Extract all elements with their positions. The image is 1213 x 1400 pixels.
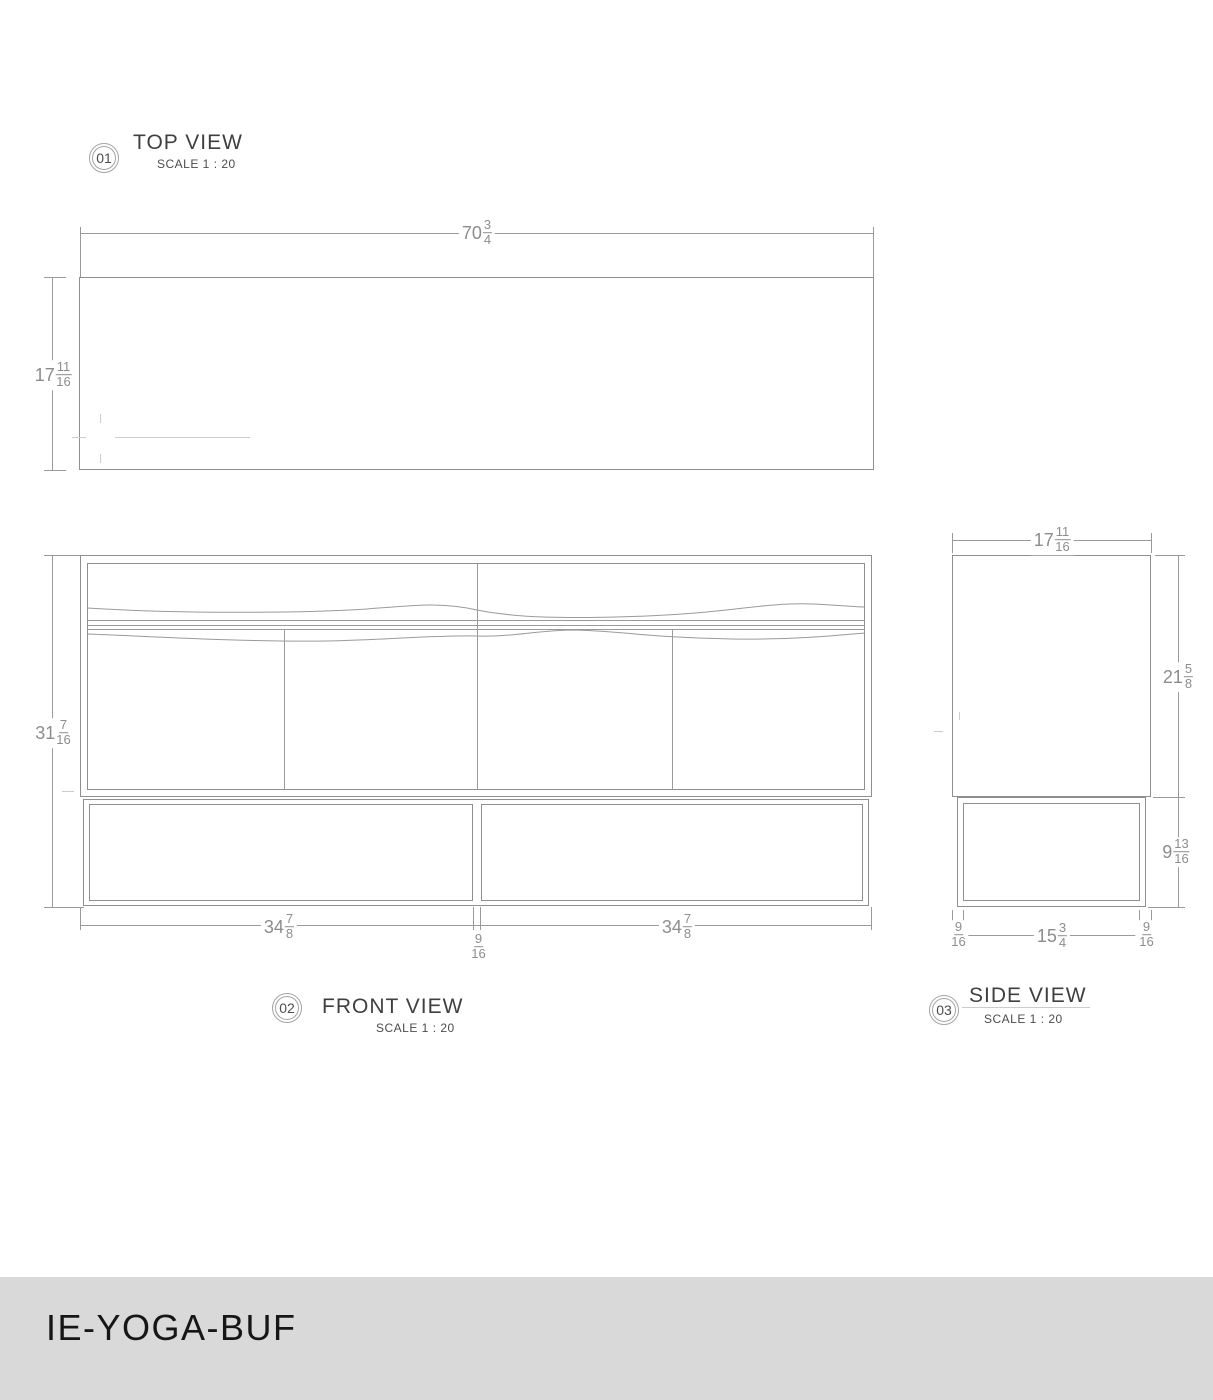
top-view-hidden-tick (100, 454, 101, 463)
side-view-height-ext-bottom (1148, 907, 1185, 908)
side-view-lower-height-dimension: 9 1316 (1159, 837, 1192, 867)
side-view-width-ext-left (952, 533, 953, 553)
top-view-hidden-tick (72, 437, 86, 438)
side-view-upper-height-dimension: 21 58 (1160, 662, 1196, 692)
front-view-left-width-dimension: 34 78 (261, 912, 297, 942)
top-view-width-dimension: 70 34 (459, 218, 495, 248)
side-view-height-ext-mid (1153, 797, 1185, 798)
front-view-base-shelf-left (89, 804, 473, 901)
front-view-base-shelf-right (481, 804, 863, 901)
top-view-depth-ext-bottom (44, 470, 66, 471)
front-view-height-ext-mid (62, 791, 74, 792)
top-view-number-circle: 01 (89, 143, 119, 173)
side-view-outline (952, 555, 1151, 797)
drawing-canvas: 01 TOP VIEW SCALE 1 : 20 70 34 17 1116 (0, 0, 1213, 1400)
front-view-door-divider (672, 630, 673, 790)
side-view-base-inner (963, 803, 1140, 901)
side-view-scale: SCALE 1 : 20 (984, 1012, 1063, 1026)
top-view-width-ext-left (80, 227, 81, 277)
side-view-number-circle: 03 (929, 995, 959, 1025)
side-view-bottom-left-gap-dimension: 916 (947, 920, 968, 950)
front-view-bottom-ext (871, 907, 872, 930)
front-view-number-circle: 02 (272, 993, 302, 1023)
top-view-title: TOP VIEW (133, 131, 243, 155)
side-view-bottom-right-gap-dimension: 916 (1135, 920, 1156, 950)
top-view-hidden-line (115, 437, 250, 438)
product-code: IE-YOGA-BUF (46, 1307, 297, 1349)
side-view-number: 03 (932, 998, 956, 1022)
side-view-hidden-tick (934, 731, 943, 732)
top-view-depth-ext-top (44, 277, 66, 278)
front-view-bottom-dim-line (80, 925, 872, 926)
top-view-scale: SCALE 1 : 20 (157, 157, 236, 171)
title-bar: IE-YOGA-BUF (0, 1277, 1213, 1400)
top-view-depth-dimension: 17 1116 (32, 360, 75, 390)
top-view-outline (79, 277, 874, 470)
side-view-width-ext-right (1151, 533, 1152, 553)
side-view-bottom-width-dimension: 15 34 (1034, 921, 1070, 951)
front-view-title: FRONT VIEW (322, 995, 463, 1019)
top-view-hidden-tick (100, 414, 101, 423)
front-view-gap-dimension: 916 (467, 932, 488, 962)
front-view-bottom-ext (473, 907, 474, 930)
front-view-scale: SCALE 1 : 20 (376, 1021, 455, 1035)
side-view-height-ext-top (1155, 555, 1185, 556)
front-view-bottom-ext (480, 907, 481, 930)
front-view-number: 02 (275, 996, 299, 1020)
front-view-right-width-dimension: 34 78 (659, 912, 695, 942)
front-view-height-ext-top (44, 555, 80, 556)
front-view-bottom-ext (80, 907, 81, 930)
side-view-width-dimension: 17 1116 (1031, 525, 1074, 555)
front-view-height-ext-bottom (44, 907, 84, 908)
front-view-height-dimension: 31 716 (32, 718, 74, 748)
top-view-width-ext-right (873, 227, 874, 277)
side-view-title: SIDE VIEW (969, 984, 1087, 1008)
front-view-door-divider (284, 630, 285, 790)
wood-grain-lines (87, 595, 865, 650)
top-view-number: 01 (92, 146, 116, 170)
side-view-hidden-tick (959, 712, 960, 720)
